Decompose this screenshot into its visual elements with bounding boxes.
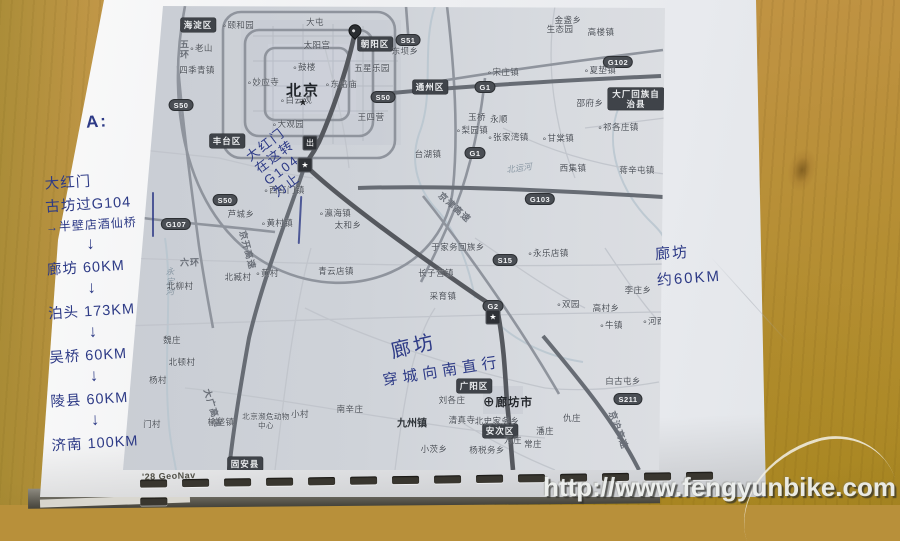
map-label: 九州镇 [397,415,427,430]
binding-hole [476,475,503,483]
note-langfang-distance: 廊坊 约60KM [654,238,722,294]
map-label: 高村乡 [593,302,620,314]
map-label: ∘永乐店镇 [527,247,568,259]
map-label: 小村 [291,408,309,420]
binding-hole [518,474,545,482]
road-shield: G1 [474,81,495,93]
map-label: ∘宋庄镇 [487,66,519,78]
map-label: 南辛庄 [337,403,364,415]
photo-scene: 海淀区朝阳区通州区丰台区大厂回族自治县广阳区安次区固安县S50S50S50S51… [0,0,900,505]
map-label: ∘牛镇 [599,319,623,331]
route-distance-list: 大红门古坊过G104→半壁店酒仙桥↓廊坊 60KM↓泊头 173KM↓吴桥 60… [44,164,201,455]
binding-hole [140,497,167,505]
map-label: 台湖镇 [415,148,442,160]
map-label: ∘东岳庙 [325,78,357,90]
binding-hole [266,478,293,486]
map-label: 常庄 [524,438,542,450]
map-marker-icon: ★ [486,310,501,325]
map-label: 北运河 [506,160,533,175]
printed-road-map: 海淀区朝阳区通州区丰台区大厂回族自治县广阳区安次区固安县S50S50S50S51… [123,6,665,470]
map-label: 榆垡镇 [208,416,235,428]
map-label: 白古屯乡 [605,375,641,387]
map-label: ∘妙应寺 [247,76,279,88]
map-label: 永顺 [490,113,508,125]
map-label: 长子营镇 [418,267,454,279]
map-label: 芦城乡 [228,208,255,220]
map-label: 五星乐园 [354,62,390,74]
map-label: 仇庄 [563,412,581,424]
map-label: 小茨乡 [421,443,448,455]
map-label: 通州区 [413,80,448,94]
map-label: 潘庄 [536,425,554,437]
map-label: ∘黄村 [255,267,279,279]
map-label: 蒋辛屯镇 [619,164,655,176]
map-label: 采育镇 [430,290,457,302]
map-label: 北史家务乡 [475,415,520,427]
binding-hole [392,476,419,484]
road-shield: G103 [525,193,555,205]
map-label: 太和乡 [335,219,362,231]
map-label: 万庄 [504,434,522,446]
map-label: 朝阳区 [358,37,393,51]
map-label: 刘各庄 [439,394,466,406]
map-label: 高楼镇 [588,26,615,38]
map-label: 邵府乡 [577,97,604,109]
map-label: 北臧村 [225,271,252,283]
road-shield: G1 [464,147,485,159]
map-label: 海淀区 [181,18,216,32]
map-label: 西集镇 [560,162,587,174]
binding-hole [308,477,335,485]
ink-stroke [152,192,154,237]
road-shield: S211 [613,393,642,405]
map-label: ∘张家湾镇 [487,131,528,143]
route-list-line: 济南 100KM [51,425,202,455]
map-copyright: '28 GeoNav [142,470,196,482]
map-label: ∘瀛海镇 [319,207,351,219]
map-label: 广阳区 [457,379,492,393]
map-label: ∘祁各庄镇 [597,121,638,133]
map-label: ∘双园 [556,298,580,310]
road-shield: S50 [169,99,194,111]
map-label: 京开高速 [237,229,260,271]
road-shield: S50 [371,91,396,103]
binding-hole [224,478,251,486]
map-label: 东坝乡 [392,45,419,57]
map-label: 大屯 [306,16,324,28]
map-label: 北京濒危动物中心 [242,412,290,430]
map-label: 青云店镇 [318,265,354,277]
map-label: 京津高速 [436,189,474,225]
map-label: 固安县 [228,457,263,471]
road-shield: S15 [493,254,518,266]
map-label: 丰台区 [210,134,245,148]
map-marker-icon: 出 [303,136,318,151]
map-label: ∘黄村镇 [261,217,293,229]
binding-hole [434,475,461,483]
map-label: 清真寺 [449,414,476,426]
map-label: 太阳宫 [304,39,331,51]
road-shield: S50 [213,194,238,206]
map-label: 李庄乡 [625,284,652,296]
map-label: 生态园 [547,23,574,35]
binding-hole [350,476,377,484]
map-label: ∘鼓楼 [292,61,316,73]
map-label: ∘夏垫镇 [584,64,616,76]
map-label: 杨税务乡 [469,444,505,456]
map-label: 大厂回族自治县 [608,88,664,110]
map-label: 京沪高速 [606,409,632,451]
map-label: ∘颐和园 [222,19,254,31]
pin-dot [351,29,355,33]
map-labels-layer: 海淀区朝阳区通州区丰台区大厂回族自治县广阳区安次区固安县S50S50S50S51… [123,6,665,470]
map-label: 四季青镇 [179,64,215,76]
note-langfang-km: 约60KM [656,264,722,294]
map-label: ⊕廊坊市 [483,394,533,410]
map-label: ∘白云观 [280,94,312,106]
map-label: 于家务回族乡 [431,241,484,253]
map-label: 玉桥 [468,111,486,123]
route-plan-label-a: A: [85,111,108,132]
map-label: 王四营 [358,111,385,123]
website-watermark: http://www.fengyunbike.com [543,472,896,503]
map-label: ∘梨园镇 [456,124,488,136]
map-label: ∘甘棠镇 [542,132,574,144]
map-label: ∘老山 [189,42,213,54]
